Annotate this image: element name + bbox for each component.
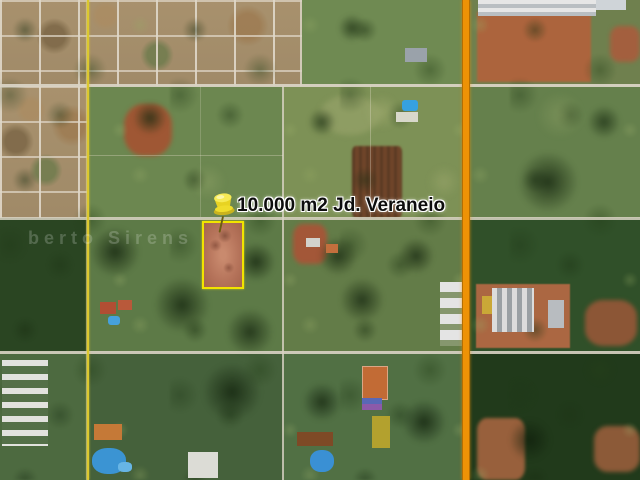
waterpark-building (94, 424, 122, 440)
villa-pool (402, 100, 418, 111)
road-vertical-center (282, 86, 284, 480)
villa-house (396, 112, 418, 122)
road-horizontal-south (0, 351, 640, 354)
placemark-label: 10.000 m2 Jd. Veraneio (237, 195, 445, 217)
satellite-map: berto Sirens 10.000 m2 Jd. Veraneio (0, 0, 640, 480)
urban-street-east-edge (300, 0, 302, 86)
red-roof-house-1 (100, 302, 116, 314)
road-horizontal-north (0, 84, 640, 87)
resort-building-yellow (372, 416, 390, 448)
gray-roof-house (405, 48, 427, 62)
small-shed (596, 0, 626, 10)
industrial-shed-roofs (478, 0, 596, 16)
white-building (188, 452, 218, 478)
resort-pool (310, 450, 334, 472)
road-horizontal-middle (0, 217, 640, 220)
fence-line-3 (200, 86, 201, 217)
backyard-pool (108, 316, 120, 325)
watermark: berto Sirens (28, 228, 193, 249)
yard-building-yellow (482, 296, 492, 314)
warehouse-roofs (492, 288, 534, 332)
resort-lodge (297, 432, 333, 446)
tennis-court-clay (362, 366, 388, 400)
red-roof-house-2 (118, 300, 132, 310)
tennis-court-purple (362, 404, 382, 410)
small-white-building (306, 238, 320, 247)
orange-roof-house (326, 244, 338, 253)
waterpark-pool-2 (118, 462, 132, 472)
fence-line-1 (88, 155, 283, 156)
apartment-rows (2, 360, 48, 446)
roadside-buildings (440, 282, 464, 346)
highway-overlay-orange (462, 0, 470, 480)
yard-shed-gray (548, 300, 564, 328)
